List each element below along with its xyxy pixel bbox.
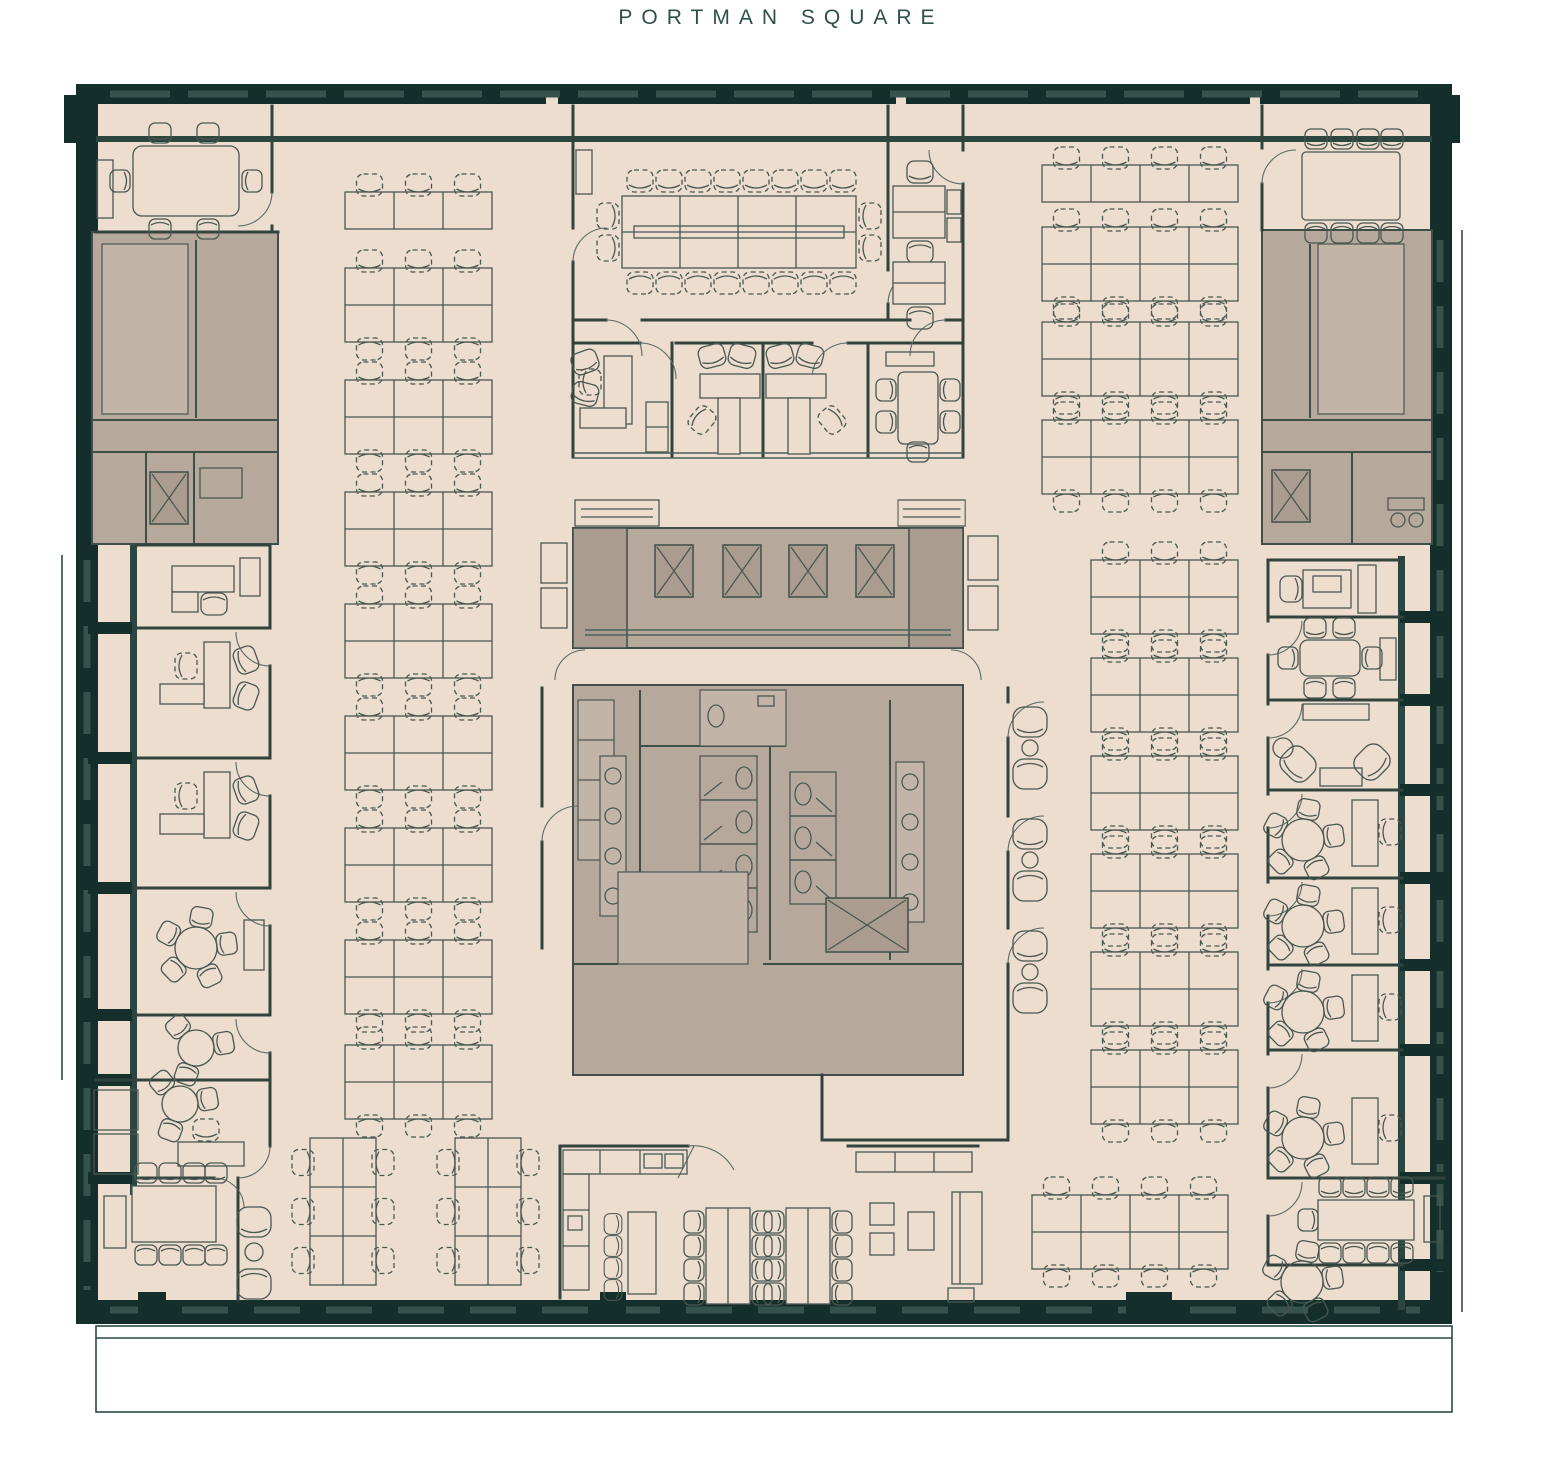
floor-plan-page: PORTMAN SQUARE — [0, 0, 1562, 1472]
stair-central — [598, 872, 748, 964]
floor-plan — [0, 0, 1562, 1472]
south-door — [600, 1292, 626, 1322]
core-north-east — [1262, 230, 1432, 544]
lift-2 — [723, 545, 761, 597]
stair-north-east — [1318, 244, 1404, 414]
lift-1 — [655, 545, 693, 597]
core-north-west — [92, 232, 278, 544]
lift-north-east — [1272, 470, 1310, 522]
stair-north-west — [102, 244, 188, 414]
south-door — [1126, 1292, 1172, 1322]
lift-north-west — [150, 472, 188, 524]
accessible-wc — [700, 690, 786, 746]
lift-4 — [856, 545, 894, 597]
lift-3 — [789, 545, 827, 597]
south-door — [138, 1292, 166, 1322]
core-central — [573, 685, 963, 1075]
